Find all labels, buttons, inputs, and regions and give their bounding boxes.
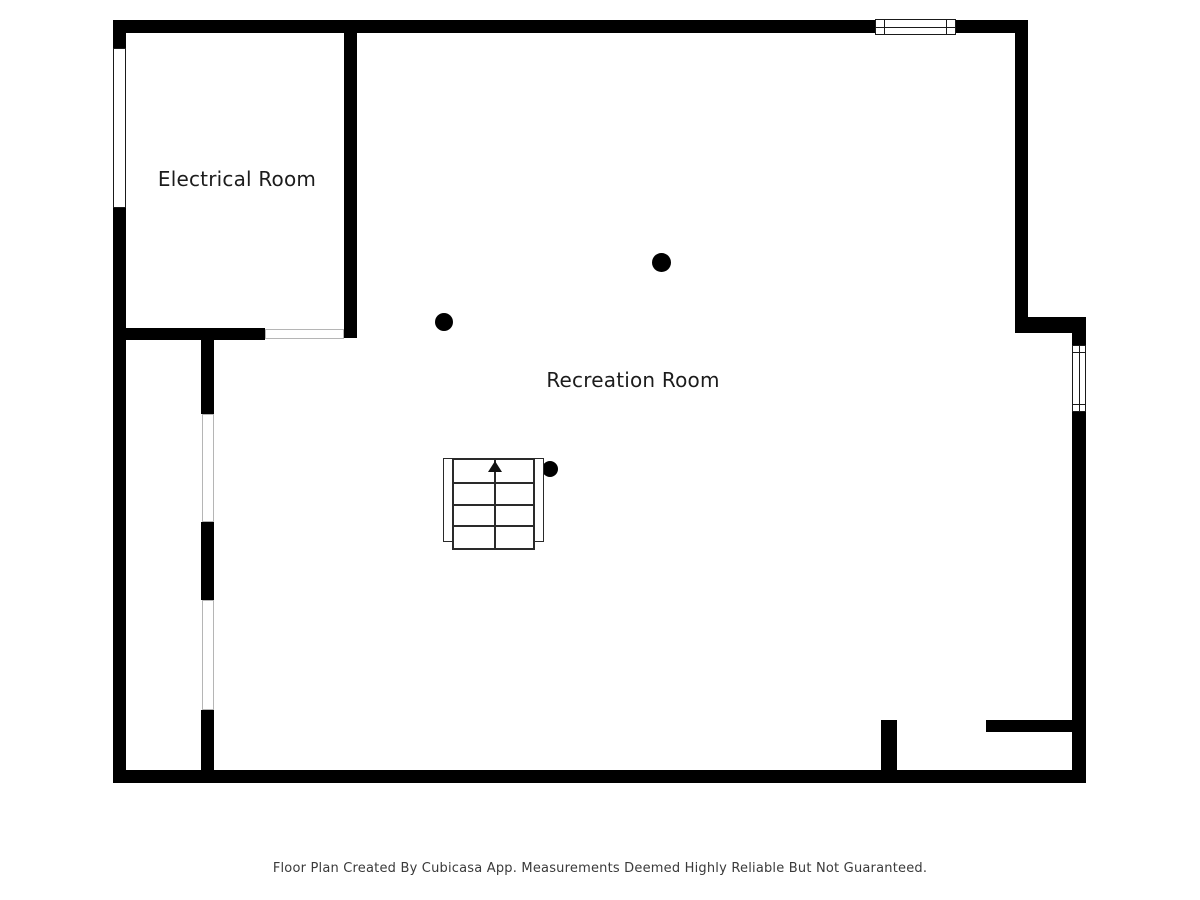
column-dot-1 <box>435 313 453 331</box>
column-dot-3 <box>542 461 558 477</box>
wall-alcove-top <box>986 720 1072 732</box>
window-pane-line <box>876 27 955 28</box>
window-top-wall <box>875 19 956 35</box>
window-frame-tick <box>1073 352 1085 353</box>
window-frame-tick <box>884 20 885 34</box>
room-label-electrical: Electrical Room <box>137 167 337 191</box>
wall-exterior-bottom <box>113 770 1086 783</box>
stair-direction-up-arrow-icon <box>488 461 502 472</box>
door-opening-corridor-lower <box>202 600 214 710</box>
wall-exterior-right-upper <box>1015 20 1028 333</box>
wall-left-corridor-segment-2 <box>201 522 214 600</box>
door-opening-electrical-room <box>265 329 344 339</box>
room-label-recreation: Recreation Room <box>528 368 738 392</box>
window-pane-line <box>1079 346 1080 411</box>
stair-center-line <box>494 460 496 548</box>
floor-plan: Electrical Room Recreation Room Floor Pl… <box>0 0 1200 900</box>
footer-disclaimer: Floor Plan Created By Cubicasa App. Meas… <box>0 861 1200 876</box>
wall-electrical-room-east <box>344 20 357 338</box>
staircase-rail-right <box>534 458 544 542</box>
wall-left-corridor-segment-3 <box>201 710 214 770</box>
column-dot-2 <box>652 253 671 272</box>
window-left-wall <box>113 48 126 208</box>
staircase <box>452 458 535 550</box>
wall-left-corridor-segment-1 <box>201 334 214 414</box>
door-opening-corridor-upper <box>202 414 214 522</box>
window-frame-tick <box>946 20 947 34</box>
wall-electrical-room-south <box>113 328 265 340</box>
window-frame-tick <box>1073 404 1085 405</box>
window-right-wall <box>1072 345 1086 412</box>
wall-alcove-west <box>881 720 897 770</box>
